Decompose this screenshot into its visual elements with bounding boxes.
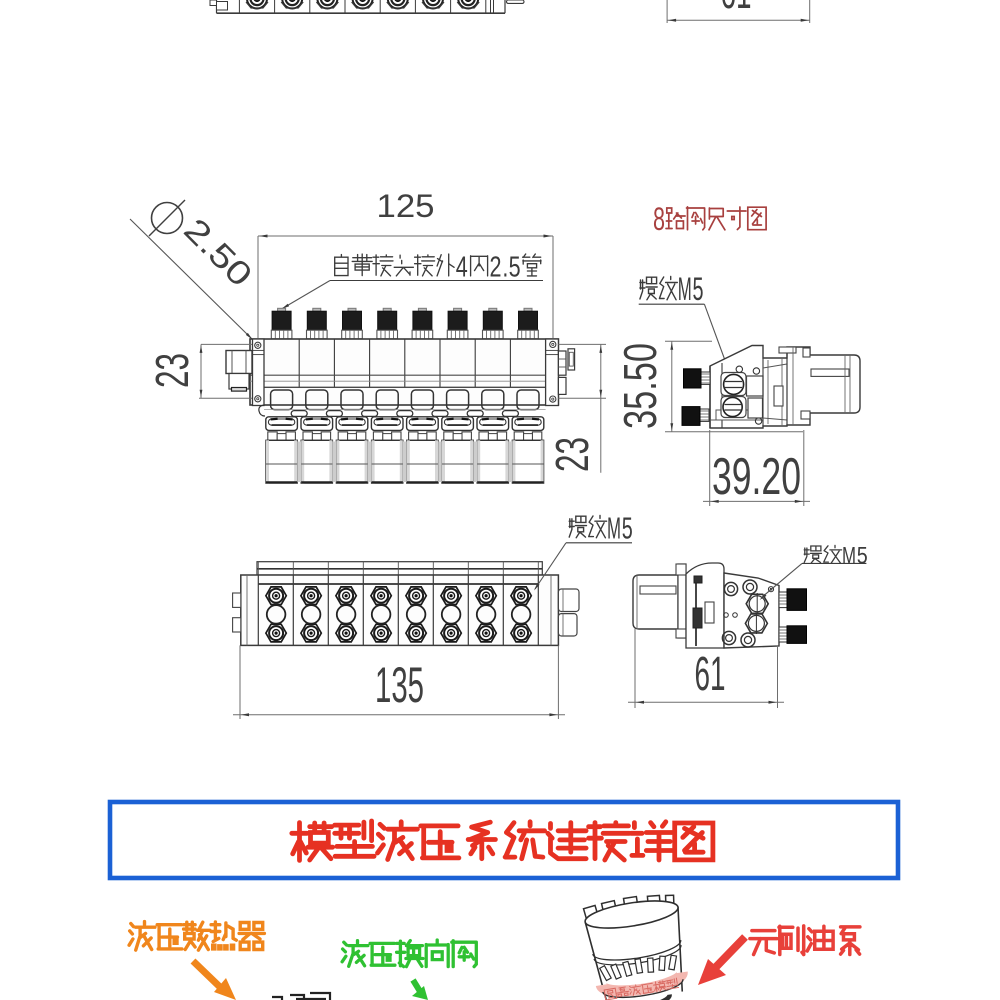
svg-text:35.50: 35.50 [614, 343, 666, 429]
svg-text:M: M [842, 542, 856, 569]
svg-text:M: M [607, 510, 621, 545]
svg-text:39.20: 39.20 [712, 448, 801, 506]
svg-text:61: 61 [695, 648, 726, 701]
svg-text:M: M [678, 271, 692, 307]
svg-text:5: 5 [857, 542, 868, 569]
svg-text:125: 125 [377, 188, 435, 224]
svg-text:5: 5 [622, 510, 633, 545]
svg-text:23: 23 [546, 437, 598, 472]
svg-text:2: 2 [490, 251, 502, 283]
svg-text:23: 23 [146, 353, 198, 388]
svg-text:5: 5 [509, 251, 521, 283]
svg-text:61: 61 [721, 0, 752, 18]
svg-text:5: 5 [693, 271, 704, 307]
svg-text:8: 8 [653, 201, 665, 237]
svg-text:4: 4 [456, 251, 468, 283]
svg-text:.: . [502, 251, 508, 283]
svg-text:135: 135 [375, 657, 424, 713]
